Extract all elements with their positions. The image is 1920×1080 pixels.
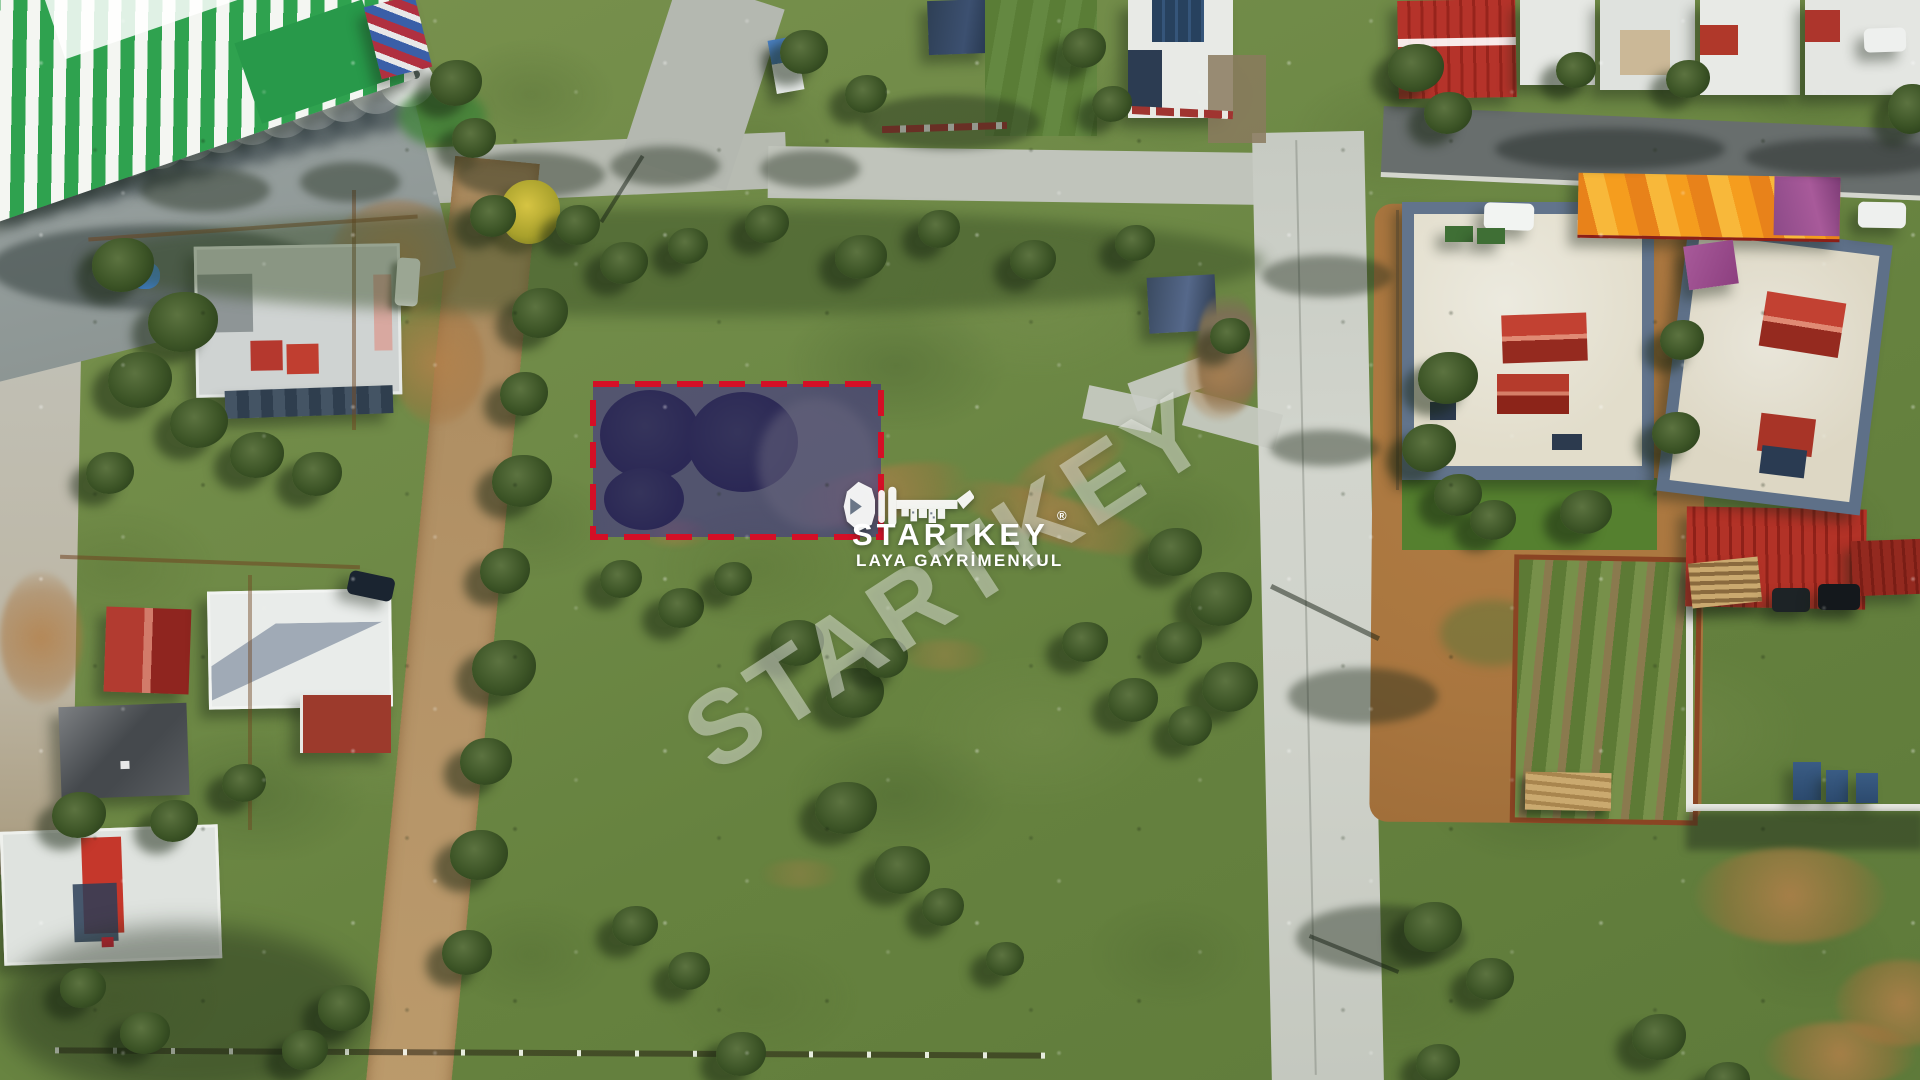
logo-subtitle-text: LAYA GAYRİMENKUL — [856, 551, 1063, 571]
aerial-photo: STARTKEY STARTKEY ® LAYA GAYRİMENKUL — [0, 0, 1920, 1080]
logo-brand-text: STARTKEY — [852, 517, 1049, 553]
startkey-logo: STARTKEY ® LAYA GAYRİMENKUL — [830, 478, 1090, 578]
registered-trademark: ® — [1057, 508, 1067, 523]
